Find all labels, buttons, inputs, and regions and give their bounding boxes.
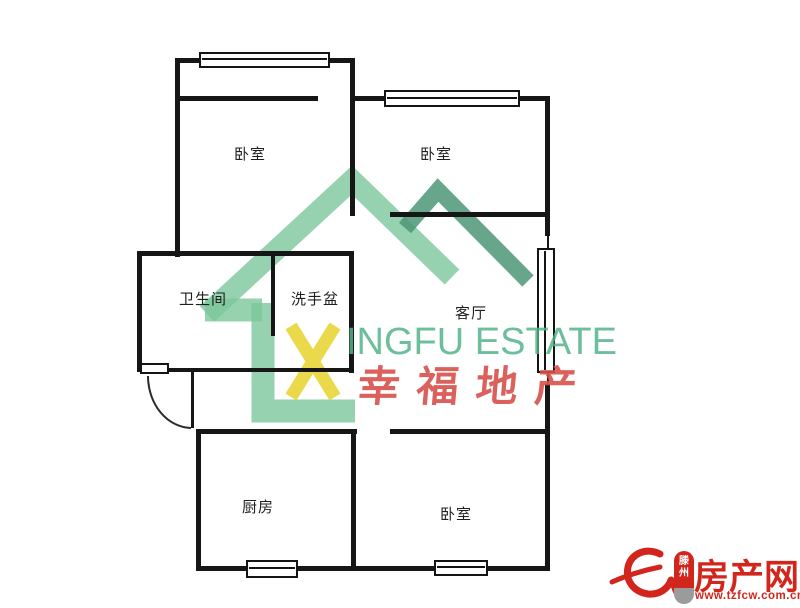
wall [137,368,354,372]
site-logo-name: 房产网 [694,549,799,600]
window-mullion [202,58,327,60]
wall [137,251,354,256]
wall [175,58,180,257]
wall [390,212,550,217]
room-label-bedroom-top-left: 卧室 [234,143,266,164]
room-label-kitchen: 厨房 [242,496,274,517]
room-label-bedroom-bottom: 卧室 [440,503,472,524]
room-label-living-room: 客厅 [455,302,487,323]
window [246,560,298,578]
wall [390,429,550,434]
watermark-brand-cn: 幸福地产 [355,353,596,414]
floorplan-image: 卧室卧室卫生间洗手盆客厅厨房卧室 INGFU ESTATE 幸福地产 滕 州 房… [0,0,800,608]
wall [196,429,357,434]
window-mullion [437,566,485,568]
window [199,52,330,68]
window-mullion [387,97,517,99]
city-char-2: 州 [674,568,694,580]
wall [137,251,142,372]
city-char-1: 滕 [674,556,694,568]
wall [196,429,201,571]
watermark-chevron-icon [405,190,528,281]
window-mullion [249,567,295,569]
watermark-x-icon [291,326,335,397]
room-label-bedroom-top-right: 卧室 [420,143,452,164]
wall [351,429,356,569]
site-logo-city-badge: 滕 州 [674,551,694,604]
wall [271,251,275,336]
room-label-bathroom: 卫生间 [179,288,227,309]
wall [175,96,318,101]
door-leaf [140,363,169,374]
door-swing-arc [148,376,191,428]
window [434,560,488,576]
window [384,90,520,107]
site-logo-url: www.tzfcw.com.cn [695,590,800,602]
room-label-washbasin: 洗手盆 [291,288,339,309]
wall [350,58,355,216]
watermark-body-icon [263,303,355,411]
wall [191,372,194,428]
wall [545,429,550,571]
